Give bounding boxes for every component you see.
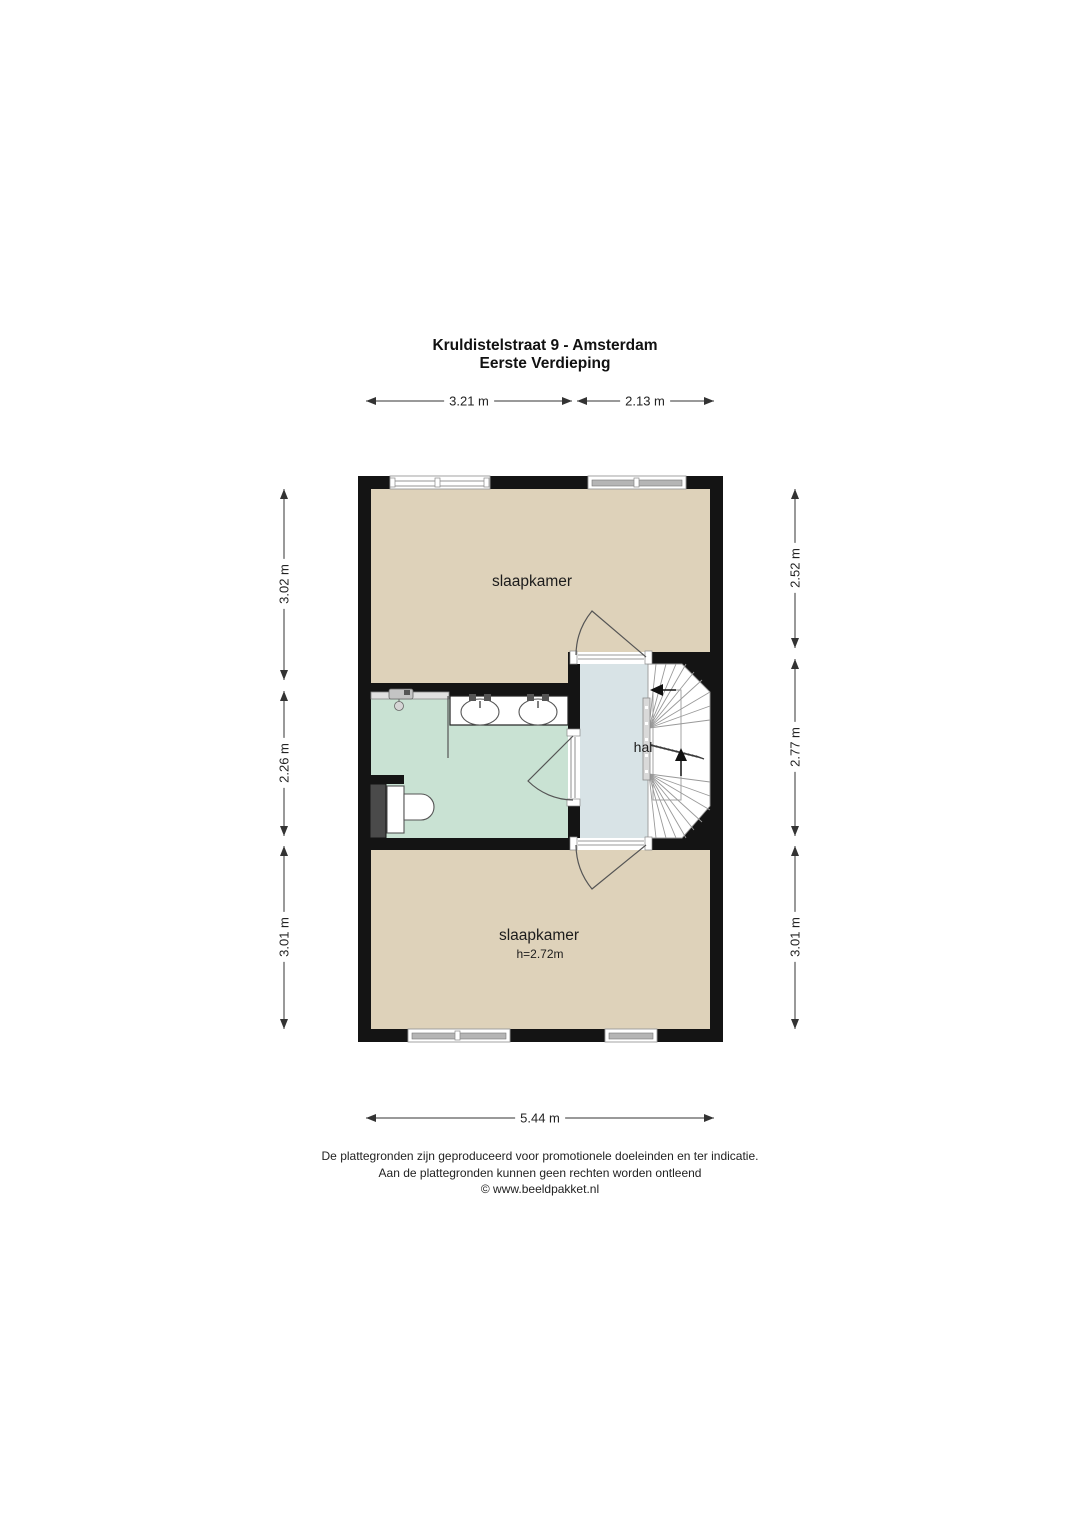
dimension-left-1: 3.02 m (277, 559, 292, 609)
window-bottom-right (605, 1029, 657, 1042)
footer-copyright: © www.beeldpakket.nl (481, 1181, 599, 1198)
dimension-right-1: 2.52 m (788, 543, 803, 593)
window-top-right (588, 476, 686, 489)
floor-plan-page: Kruldistelstraat 9 - Amsterdam Eerste Ve… (0, 0, 1080, 1527)
dimension-left-2: 2.26 m (277, 738, 292, 788)
dimension-left-3: 3.01 m (277, 912, 292, 962)
room-label-bedroom-top: slaapkamer (492, 573, 572, 591)
dimension-right-2: 2.77 m (788, 722, 803, 772)
staircase (643, 664, 710, 838)
footer-disclaimer-2: Aan de plattegronden kunnen geen rechten… (379, 1165, 702, 1182)
dimension-right-3: 3.01 m (788, 912, 803, 962)
dimension-top-right: 2.13 m (620, 394, 670, 409)
room-ceiling-height: h=2.72m (516, 947, 563, 961)
floor-plan-graphic (0, 0, 1080, 1527)
footer-disclaimer-1: De plattegronden zijn geproduceerd voor … (322, 1148, 759, 1165)
dimension-top-left: 3.21 m (444, 394, 494, 409)
room-label-hall: hal (634, 739, 653, 755)
dimension-bottom: 5.44 m (515, 1111, 565, 1126)
washbasin-counter (450, 694, 568, 725)
window-top-left (390, 476, 490, 489)
room-label-bedroom-bottom: slaapkamer (499, 927, 579, 945)
window-bottom-left (408, 1029, 510, 1042)
